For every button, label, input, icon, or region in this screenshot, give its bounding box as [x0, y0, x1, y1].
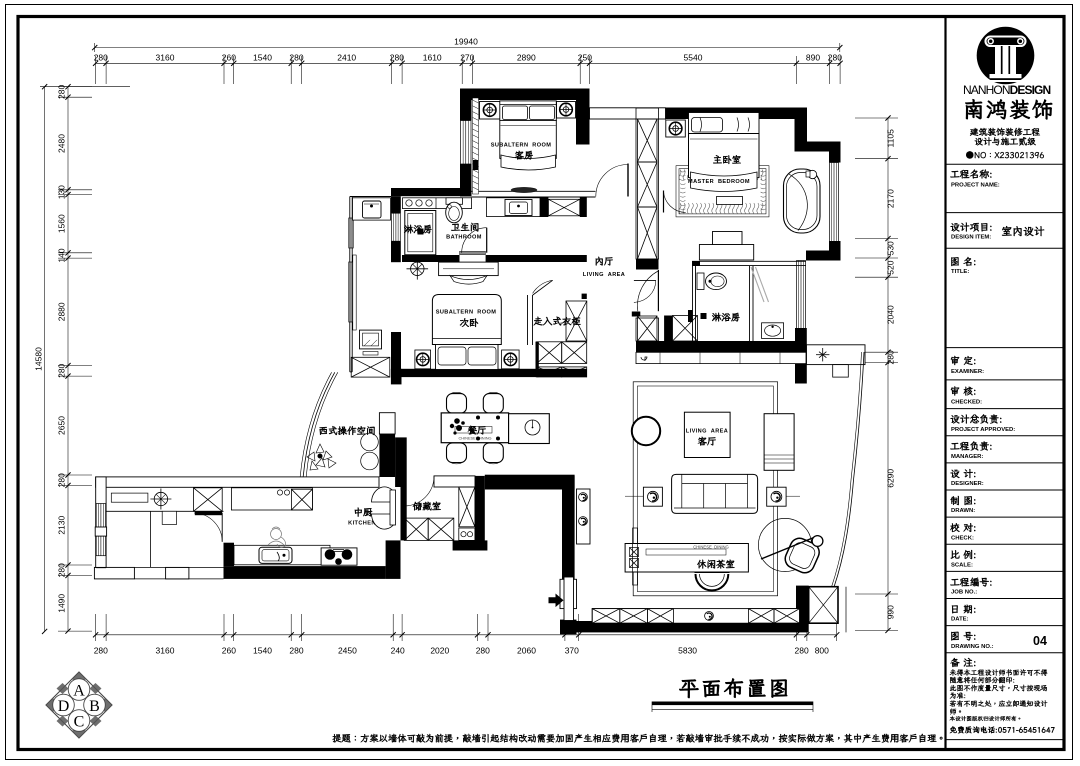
svg-text:3160: 3160 [156, 52, 175, 62]
svg-text:工程编号:: 工程编号: [950, 575, 993, 588]
svg-text:260: 260 [222, 646, 236, 656]
svg-text:2650: 2650 [57, 416, 67, 435]
svg-text:MANAGER:: MANAGER: [951, 454, 983, 460]
svg-text:14580: 14580 [34, 347, 44, 371]
svg-text:250: 250 [578, 52, 592, 62]
svg-text:设 计:: 设 计: [950, 467, 976, 480]
svg-text:提题：方案以墙体可敲为前提，敲墙引起结构改动需要加固产生相应: 提题：方案以墙体可敲为前提，敲墙引起结构改动需要加固产生相应费用客户自理，若敲墙… [332, 732, 946, 745]
svg-text:800: 800 [815, 646, 829, 656]
svg-text:比 例:: 比 例: [950, 548, 976, 561]
svg-text:CHINESE DINING: CHINESE DINING [693, 544, 729, 549]
svg-text:NANHONDESIGN: NANHONDESIGN [963, 83, 1050, 97]
svg-text:西式操作空间: 西式操作空间 [318, 424, 375, 437]
svg-text:●NO：X233021396: ●NO：X233021396 [966, 150, 1045, 161]
svg-text:设计总负责:: 设计总负责: [950, 413, 1002, 426]
svg-text:2480: 2480 [57, 134, 67, 153]
svg-text:280: 280 [94, 646, 108, 656]
svg-text:280: 280 [57, 363, 67, 377]
svg-text:中厨: 中厨 [353, 505, 373, 518]
svg-text:370: 370 [565, 646, 579, 656]
svg-text:520: 520 [886, 260, 896, 274]
svg-text:图 名:: 图 名: [950, 255, 976, 268]
svg-text:130: 130 [57, 185, 67, 199]
svg-text:280: 280 [94, 52, 108, 62]
svg-text:2880: 2880 [57, 302, 67, 321]
svg-text:260: 260 [222, 52, 236, 62]
svg-text:280: 280 [828, 52, 842, 62]
svg-text:卫生间: 卫生间 [451, 221, 480, 234]
svg-text:1540: 1540 [253, 52, 272, 62]
svg-text:校 对:: 校 对: [950, 521, 976, 534]
svg-text:CHINESE DINING: CHINESE DINING [458, 435, 491, 440]
svg-text:CHECKED:: CHECKED: [951, 400, 982, 406]
svg-text:休闲茶室: 休闲茶室 [697, 558, 735, 571]
svg-text:本设计图版权归设计师所有。: 本设计图版权归设计师所有。 [950, 714, 1023, 722]
svg-text:280: 280 [57, 85, 67, 99]
svg-text:TITLE:: TITLE: [951, 269, 969, 275]
svg-text:140: 140 [57, 248, 67, 262]
svg-text:内厅: 内厅 [594, 255, 613, 268]
svg-text:储藏室: 储藏室 [413, 500, 442, 513]
svg-text:2410: 2410 [337, 52, 356, 62]
svg-text:1610: 1610 [423, 52, 442, 62]
svg-text:审 核:: 审 核: [950, 385, 976, 398]
svg-text:工程名称:: 工程名称: [950, 168, 993, 181]
svg-text:DRAWN:: DRAWN: [951, 508, 975, 514]
svg-text:SUBALTERN ROOM: SUBALTERN ROOM [436, 310, 497, 316]
svg-text:270: 270 [460, 52, 474, 62]
svg-text:BATHROOM: BATHROOM [446, 234, 482, 240]
svg-text:JOB NO.:: JOB NO.: [951, 590, 977, 596]
svg-text:DESIGNER:: DESIGNER: [951, 481, 984, 487]
svg-text:280: 280 [886, 350, 896, 364]
svg-text:DATE:: DATE: [951, 617, 969, 623]
svg-text:A: A [73, 683, 85, 700]
svg-text:日 期:: 日 期: [950, 602, 976, 615]
svg-text:1490: 1490 [57, 594, 67, 613]
svg-text:工程负责:: 工程负责: [950, 440, 993, 453]
svg-text:D: D [58, 698, 70, 715]
svg-text:C: C [74, 714, 85, 731]
svg-text:CHECK:: CHECK: [951, 535, 974, 541]
svg-text:1560: 1560 [57, 214, 67, 233]
svg-text:280: 280 [289, 646, 303, 656]
svg-text:设计项目:: 设计项目: [950, 221, 993, 234]
svg-text:室内设计: 室内设计 [1001, 225, 1044, 239]
svg-text:990: 990 [886, 605, 896, 619]
svg-text:DRAWING NO.:: DRAWING NO.: [951, 644, 994, 650]
svg-text:280: 280 [795, 646, 809, 656]
svg-text:5830: 5830 [678, 646, 697, 656]
svg-text:04: 04 [1033, 634, 1047, 648]
svg-text:2130: 2130 [57, 515, 67, 534]
svg-text:若有不明之处，应立即通知设计: 若有不明之处，应立即通知设计 [950, 699, 1048, 708]
svg-text:280: 280 [476, 646, 490, 656]
svg-text:240: 240 [391, 646, 405, 656]
svg-text:3160: 3160 [156, 646, 175, 656]
svg-text:客厅: 客厅 [697, 435, 716, 448]
svg-text:530: 530 [886, 241, 896, 255]
svg-text:MASTER BEDROOM: MASTER BEDROOM [688, 179, 750, 185]
svg-text:B: B [89, 698, 100, 715]
svg-text:2020: 2020 [430, 646, 449, 656]
svg-text:PROJECT NAME:: PROJECT NAME: [951, 183, 1000, 189]
svg-text:DESIGN ITEM:: DESIGN ITEM: [951, 235, 991, 241]
svg-text:1540: 1540 [253, 646, 272, 656]
svg-text:280: 280 [289, 52, 303, 62]
svg-text:KITCHEN: KITCHEN [348, 520, 376, 526]
svg-text:客房: 客房 [514, 149, 533, 162]
svg-text:南鸿装饰: 南鸿装饰 [963, 96, 1055, 124]
svg-text:2060: 2060 [517, 646, 536, 656]
svg-text:2450: 2450 [338, 646, 357, 656]
svg-text:280: 280 [390, 52, 404, 62]
svg-text:280: 280 [57, 563, 67, 577]
svg-text:19940: 19940 [454, 37, 478, 47]
svg-text:审 定:: 审 定: [950, 354, 976, 367]
svg-text:平面布置图: 平面布置图 [679, 675, 792, 702]
svg-text:次卧: 次卧 [459, 316, 479, 329]
svg-text:EXAMINER:: EXAMINER: [951, 369, 984, 375]
svg-text:SCALE:: SCALE: [951, 563, 973, 569]
svg-text:280: 280 [57, 473, 67, 487]
svg-text:LIVING AREA: LIVING AREA [583, 272, 625, 278]
svg-text:PROJECT APPROVED:: PROJECT APPROVED: [951, 427, 1015, 433]
svg-text:制 图:: 制 图: [950, 494, 976, 507]
svg-text:淋浴房: 淋浴房 [404, 223, 433, 236]
svg-text:1105: 1105 [886, 129, 896, 148]
svg-text:2040: 2040 [886, 305, 896, 324]
svg-text:2890: 2890 [517, 52, 536, 62]
svg-text:设计与施工贰级: 设计与施工贰级 [974, 136, 1036, 148]
svg-text:免费质询电话:0571-65451647: 免费质询电话:0571-65451647 [950, 726, 1056, 736]
svg-text:淋浴房: 淋浴房 [712, 311, 741, 324]
svg-text:5540: 5540 [684, 52, 703, 62]
svg-text:主卧室: 主卧室 [713, 153, 742, 166]
svg-text:图 号:: 图 号: [950, 630, 976, 643]
svg-text:2170: 2170 [886, 189, 896, 208]
svg-text:6290: 6290 [886, 469, 896, 488]
svg-text:890: 890 [806, 52, 820, 62]
